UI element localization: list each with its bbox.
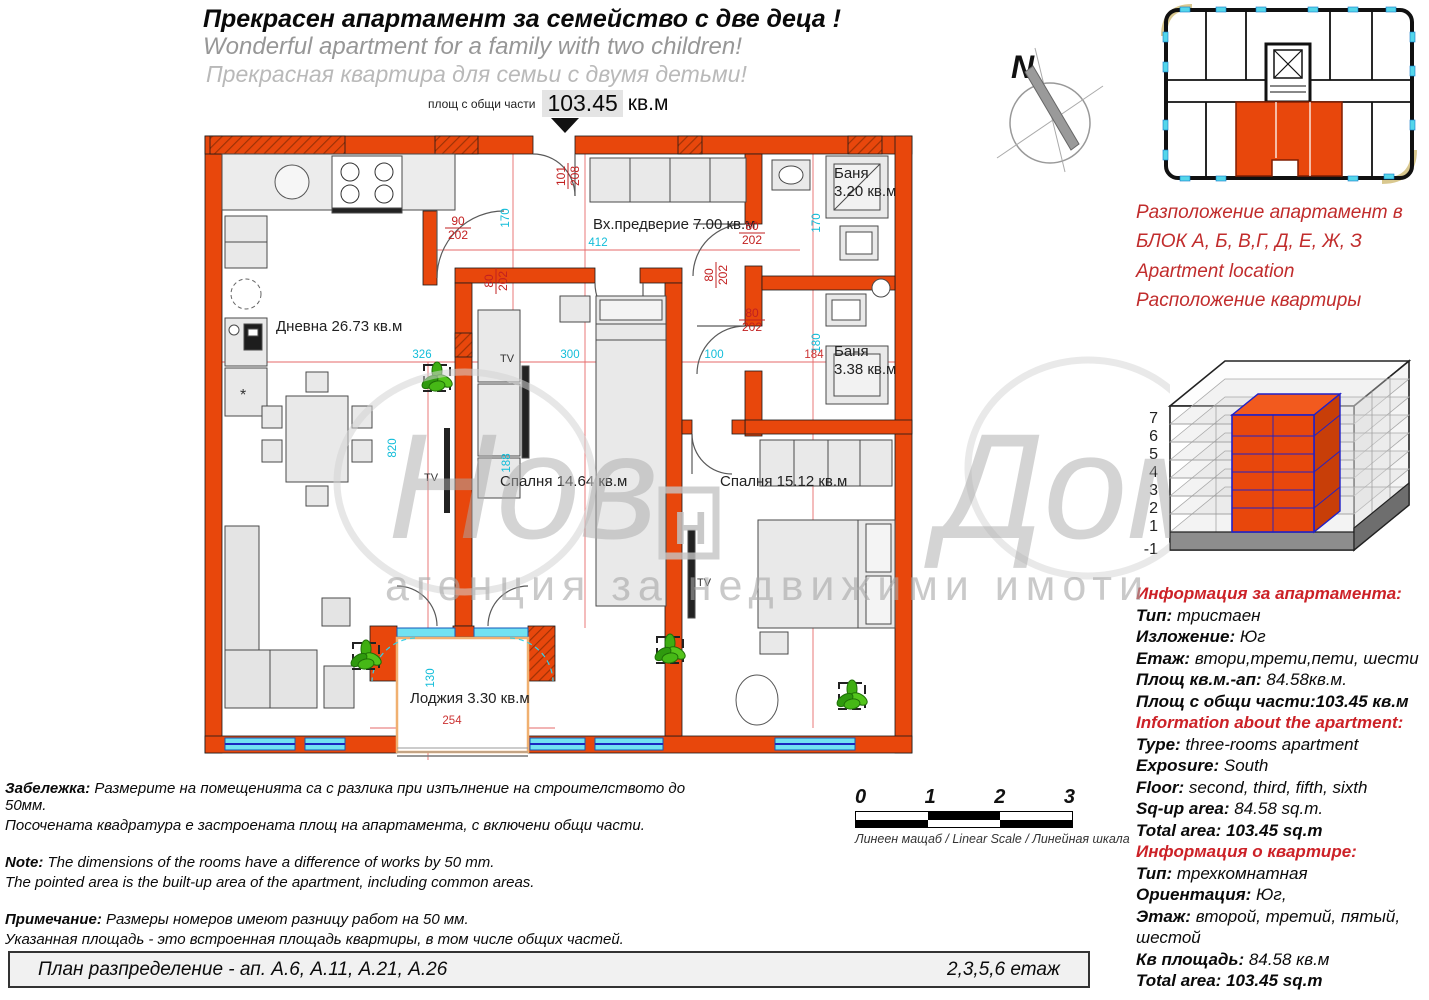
scale-bar <box>855 811 1073 828</box>
svg-text:170: 170 <box>811 213 823 232</box>
svg-text:170: 170 <box>500 208 512 227</box>
svg-text:202: 202 <box>496 271 510 291</box>
page-title: Прекрасен апартамент за семейство с две … <box>203 5 841 34</box>
svg-text:90: 90 <box>451 214 465 228</box>
block-mini-plan <box>1158 2 1420 188</box>
info-en-title: Information about the apartment: <box>1136 712 1428 734</box>
info-row: Sq-up area: 84.58 sq.m. <box>1136 798 1428 820</box>
fridge-symbol: * <box>240 387 246 404</box>
svg-text:ТV: ТV <box>424 472 439 484</box>
location-line-ru: Расположение квартиры <box>1136 286 1428 315</box>
svg-text:412: 412 <box>588 237 607 249</box>
location-line-bg1: Разположение апартамент в <box>1136 198 1428 227</box>
info-row: Тип: трехкомнатная <box>1136 863 1428 885</box>
info-row: Ориентация: Юг, <box>1136 884 1428 906</box>
room-label-bath1-area: 3.20 кв.м <box>834 183 896 200</box>
compass-icon: N <box>985 38 1115 178</box>
note-bg-line1: Забележка: Размерите на помещенията са с… <box>5 780 705 814</box>
info-row: Кв площадь: 84.58 кв.м <box>1136 949 1428 971</box>
location-text-block: Разположение апартамент в БЛОК А, Б, В,Г… <box>1136 198 1428 315</box>
location-line-en: Apartment location <box>1136 257 1428 286</box>
info-row: Total area: 103.45 sq.m <box>1136 970 1428 992</box>
note-en-line1: Note: The dimensions of the rooms have a… <box>5 854 705 871</box>
svg-text:326: 326 <box>412 349 431 361</box>
note-ru-line2: Указанная площадь - это встроенная площа… <box>5 931 705 948</box>
svg-text:101: 101 <box>554 166 568 186</box>
room-label-bedroom1: Спалня 14.64 кв.м <box>500 473 627 490</box>
note-en-line2: The pointed area is the built-up area of… <box>5 874 705 891</box>
svg-text:6: 6 <box>1149 428 1158 445</box>
svg-text:130: 130 <box>425 668 437 687</box>
location-line-bg2: БЛОК А, Б, В,Г, Д, Е, Ж, З <box>1136 227 1428 256</box>
svg-text:80: 80 <box>745 219 759 233</box>
svg-text:202: 202 <box>448 228 468 242</box>
info-row: Площ кв.м.-ап: 84.58кв.м. <box>1136 669 1428 691</box>
info-row: Изложение: Юг <box>1136 626 1428 648</box>
svg-text:4: 4 <box>1149 464 1158 481</box>
svg-text:ТV: ТV <box>697 577 712 589</box>
svg-text:188: 188 <box>501 453 513 472</box>
svg-text:100: 100 <box>704 349 723 361</box>
svg-text:202: 202 <box>742 233 762 247</box>
info-row: Этаж: второй, третий, пятый, шестой <box>1136 906 1428 949</box>
page-subtitle-en: Wonderful apartment for a family with tw… <box>203 33 742 61</box>
floor-numbers: 7 6 5 4 3 2 1 -1 <box>1144 410 1158 558</box>
room-label-bedroom2: Спалня 15.12 кв.м <box>720 473 847 490</box>
building-axonometric: 7 6 5 4 3 2 1 -1 <box>1132 318 1424 576</box>
svg-text:254: 254 <box>442 715 462 727</box>
info-row: Total area: 103.45 sq.m <box>1136 820 1428 842</box>
total-area-unit: кв.м <box>628 92 669 116</box>
info-bg-title: Информация за апартамента: <box>1136 583 1428 605</box>
notes-block: Забележка: Размерите на помещенията са с… <box>5 780 705 951</box>
note-bg-line2: Посочената квадратура е застроената площ… <box>5 817 705 834</box>
room-label-bath1: Баня <box>834 165 869 182</box>
hall-wardrobe <box>590 158 746 202</box>
info-row: Floor: second, third, fifth, sixth <box>1136 777 1428 799</box>
svg-text:ТV: ТV <box>500 353 515 365</box>
footer-bar: План разпределение - ап. А.6, А.11, А.21… <box>8 951 1090 988</box>
room-label-living: Дневна 26.73 кв.м <box>276 318 402 335</box>
svg-text:7: 7 <box>1149 410 1158 427</box>
room-label-bath2-area: 3.38 кв.м <box>834 361 896 378</box>
tv-panel-living <box>444 428 450 513</box>
svg-text:80: 80 <box>702 268 716 282</box>
svg-text:300: 300 <box>560 349 579 361</box>
total-area-label: площ с общи части <box>428 97 535 111</box>
svg-text:202: 202 <box>716 265 730 285</box>
svg-text:-1: -1 <box>1144 541 1158 558</box>
svg-text:208: 208 <box>568 166 582 186</box>
page-subtitle-ru: Прекрасная квартира для семьи с двумя де… <box>206 61 747 88</box>
total-area-callout: площ с общи части 103.45 кв.м <box>428 90 668 117</box>
scale-numbers: 0 1 2 3 <box>855 786 1075 809</box>
info-row: Exposure: South <box>1136 755 1428 777</box>
flyer-page: Прекрасен апартамент за семейство с две … <box>0 0 1429 1000</box>
svg-text:202: 202 <box>742 320 762 334</box>
room-label-loggia: Лоджия 3.30 кв.м <box>410 690 530 707</box>
svg-text:1: 1 <box>1149 518 1158 535</box>
info-ru-title: Информация о квартире: <box>1136 841 1428 863</box>
highlighted-stack <box>1232 394 1340 532</box>
svg-text:80: 80 <box>745 306 759 320</box>
svg-text:184: 184 <box>804 349 824 361</box>
svg-text:820: 820 <box>387 438 399 457</box>
info-row: Тип: тристаен <box>1136 605 1428 627</box>
info-row: Площ с общи части:103.45 кв.м <box>1136 691 1428 713</box>
footer-floors-label: 2,3,5,6 етаж <box>947 959 1060 981</box>
note-ru-line1: Примечание: Размеры номеров имеют разниц… <box>5 911 705 928</box>
total-area-value: 103.45 <box>542 90 622 117</box>
svg-text:80: 80 <box>482 274 496 288</box>
room-label-bath2: Баня <box>834 343 869 360</box>
room-label-hall: Вх.предверие 7.00 кв.м <box>593 216 755 233</box>
info-row: Етаж: втори,трети,пети, шести <box>1136 648 1428 670</box>
svg-text:5: 5 <box>1149 446 1158 463</box>
scale-caption: Линеен мащаб / Linear Scale / Линейная ш… <box>855 832 1075 846</box>
svg-text:2: 2 <box>1149 500 1158 517</box>
info-row: Type: three-rooms apartment <box>1136 734 1428 756</box>
svg-text:3: 3 <box>1149 482 1158 499</box>
floorplan-drawing: * <box>200 128 915 766</box>
apartment-info-panel: Информация за апартамента: Тип: тристаен… <box>1136 583 1428 992</box>
linear-scale: 0 1 2 3 Линеен мащаб / Linear Scale / Ли… <box>855 786 1075 846</box>
footer-plan-label: План разпределение - ап. А.6, А.11, А.21… <box>38 959 447 981</box>
